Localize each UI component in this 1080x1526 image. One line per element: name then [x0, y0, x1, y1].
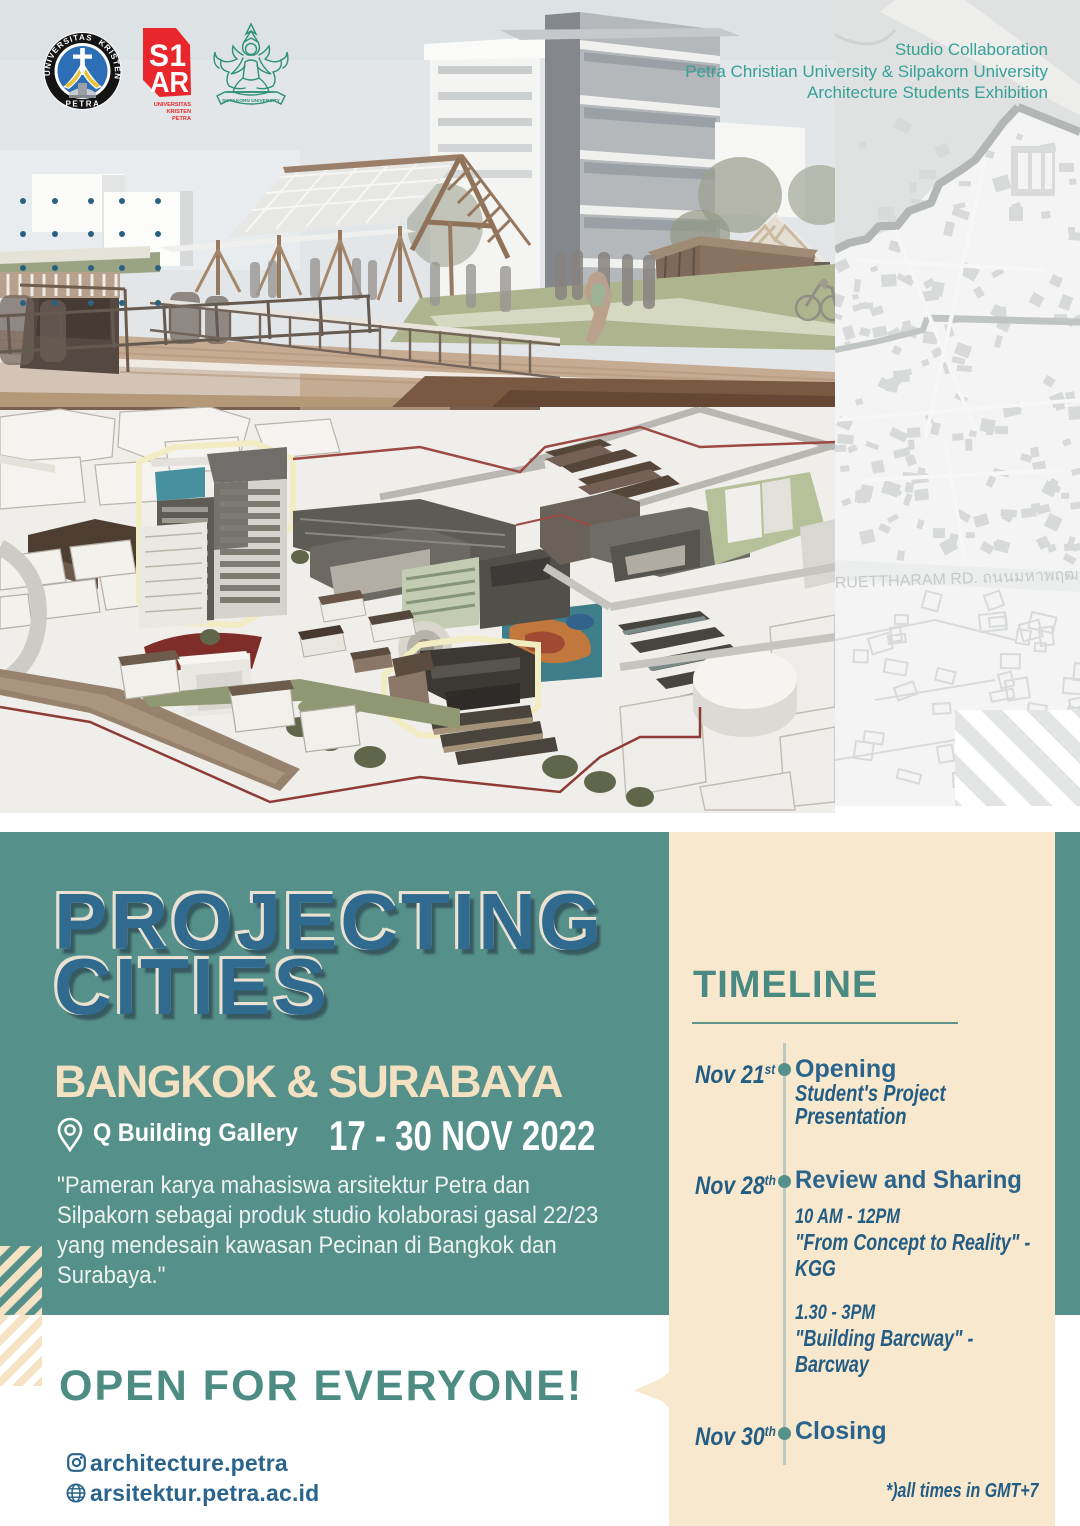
svg-text:AR: AR — [150, 66, 189, 98]
svg-text:KRISTEN: KRISTEN — [166, 109, 191, 115]
svg-text:UNIVERSITAS: UNIVERSITAS — [154, 102, 191, 108]
svg-text:SILPAKORN UNIVERSITY: SILPAKORN UNIVERSITY — [222, 98, 281, 104]
svg-text:PETRA: PETRA — [172, 116, 191, 122]
svg-text:PETRA: PETRA — [65, 100, 100, 109]
